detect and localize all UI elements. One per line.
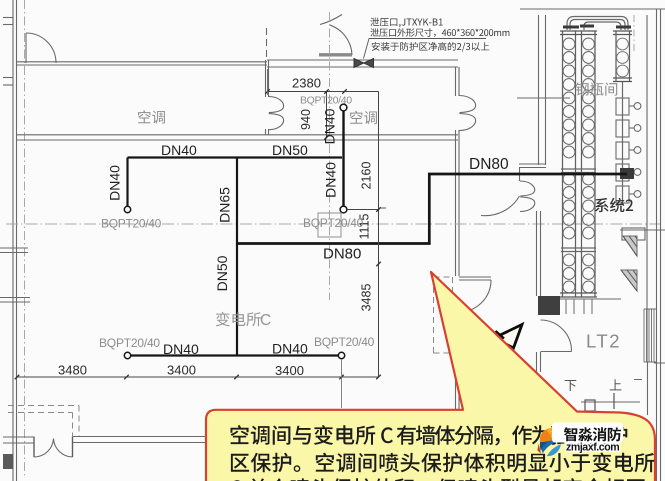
svg-text:BQPT20/40: BQPT20/40 [314, 335, 375, 349]
svg-text:C: C [260, 312, 271, 329]
svg-text:3400: 3400 [275, 363, 304, 378]
svg-text:2160: 2160 [360, 162, 374, 190]
svg-text:DN40: DN40 [163, 341, 199, 357]
svg-text:DN50: DN50 [214, 255, 230, 291]
svg-text:DN50: DN50 [272, 142, 308, 158]
svg-text:2380: 2380 [292, 76, 321, 91]
svg-text:DN40: DN40 [322, 108, 338, 144]
svg-text:DN40: DN40 [161, 142, 197, 158]
svg-text:3485: 3485 [360, 284, 374, 312]
svg-text:BQPT20/40: BQPT20/40 [300, 95, 352, 107]
svg-text:DN40: DN40 [272, 341, 308, 357]
svg-text:BQPT20/40: BQPT20/40 [303, 216, 364, 230]
svg-text:DN40: DN40 [107, 165, 123, 201]
svg-text:zmjaxf.com: zmjaxf.com [566, 442, 619, 454]
svg-text:940: 940 [299, 109, 313, 130]
svg-text:BQPT20/40: BQPT20/40 [99, 336, 160, 350]
svg-text:3400: 3400 [167, 363, 196, 378]
svg-text:DN80: DN80 [323, 246, 361, 263]
svg-text:DN65: DN65 [217, 187, 233, 223]
svg-text:LT2: LT2 [586, 331, 621, 352]
svg-text:DN40: DN40 [323, 162, 339, 198]
svg-text:BQPT20/40: BQPT20/40 [101, 217, 162, 231]
svg-text:DN80: DN80 [469, 156, 509, 173]
svg-text:3480: 3480 [58, 363, 87, 378]
